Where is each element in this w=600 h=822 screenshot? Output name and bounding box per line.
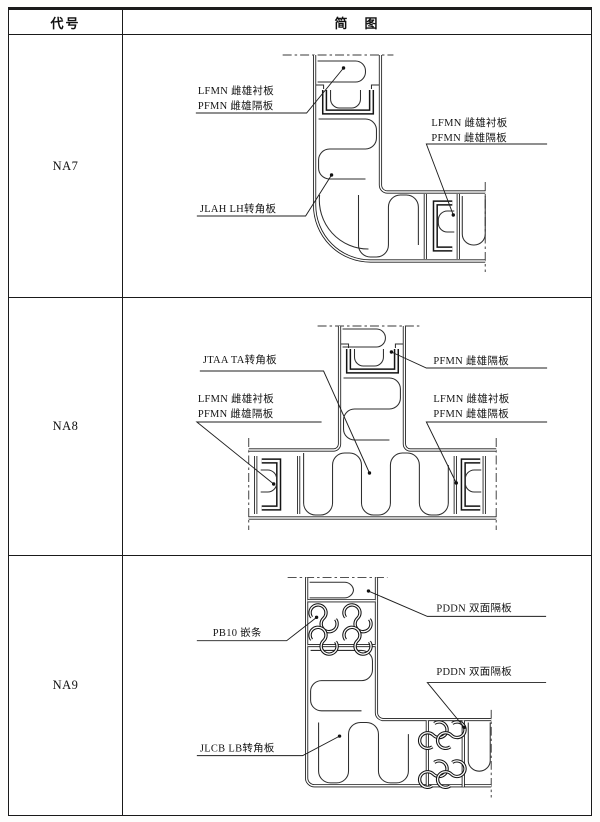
header-cell-diagram: 简 图 — [123, 10, 591, 34]
na9-corner-profile-diagram: PB10 嵌条 PDDN 双面隔板 PDDN 双面隔板 JLCB LB转角板 — [123, 556, 591, 815]
profile-label: LFMN 雌雄衬板 — [433, 392, 509, 405]
profile-label: PFMN 雌雄隔板 — [198, 407, 274, 420]
na8-tee-profile-diagram: JTAA TA转角板 LFMN 雌雄衬板 PFMN 雌雄隔板 PFMN 雌雄隔板… — [123, 298, 591, 555]
profile-table: 代号 简 图 NA7 — [8, 7, 592, 816]
header-cell-code: 代号 — [9, 10, 123, 34]
profile-label: PDDN 双面隔板 — [436, 665, 512, 678]
profile-code: NA8 — [53, 419, 79, 434]
table-row-na7: NA7 — [9, 35, 591, 298]
table-row-na8: NA8 — [9, 298, 591, 556]
profile-label: JLAH LH转角板 — [200, 202, 277, 215]
profile-code: NA9 — [53, 678, 79, 693]
diagram-cell-na8: JTAA TA转角板 LFMN 雌雄衬板 PFMN 雌雄隔板 PFMN 雌雄隔板… — [123, 298, 591, 555]
code-cell-na9: NA9 — [9, 556, 123, 815]
profile-label: JTAA TA转角板 — [203, 353, 277, 366]
joint-channel-right — [455, 456, 484, 514]
profile-label: PB10 嵌条 — [213, 626, 262, 639]
header-diagram-label: 简 图 — [334, 13, 379, 32]
profile-label: LFMN 雌雄衬板 — [198, 392, 274, 405]
thermal-break-serpentine — [318, 61, 486, 257]
diagram-cell-na9: PB10 嵌条 PDDN 双面隔板 PDDN 双面隔板 JLCB LB转角板 — [123, 556, 591, 815]
profile-label: PFMN 雌雄隔板 — [433, 354, 509, 367]
document-page: 代号 简 图 NA7 — [0, 0, 600, 822]
profile-label: JLCB LB转角板 — [200, 742, 275, 755]
profile-label: PFMN 雌雄隔板 — [198, 99, 274, 112]
diagram-cell-na7: LFMN 雌雄衬板 PFMN 雌雄隔板 LFMN 雌雄衬板 PFMN 雌雄隔板 … — [123, 35, 591, 297]
table-row-na9: NA9 — [9, 556, 591, 815]
profile-label: PDDN 双面隔板 — [436, 602, 512, 615]
profile-label: LFMN 雌雄衬板 — [431, 116, 507, 129]
code-cell-na8: NA8 — [9, 298, 123, 555]
insert-strip-joint-top — [308, 601, 376, 654]
table-header-row: 代号 简 图 — [9, 10, 591, 35]
profile-label: PFMN 雌雄隔板 — [433, 407, 509, 420]
joint-channel-top — [316, 85, 380, 112]
code-cell-na7: NA7 — [9, 35, 123, 297]
joint-channel-left — [256, 456, 299, 514]
profile-label: LFMN 雌雄衬板 — [198, 84, 274, 97]
header-code-label: 代号 — [50, 13, 80, 32]
callout-leaders: PB10 嵌条 PDDN 双面隔板 PDDN 双面隔板 JLCB LB转角板 — [197, 589, 546, 755]
joint-channel-right — [425, 194, 458, 259]
na7-corner-profile-diagram: LFMN 雌雄衬板 PFMN 雌雄隔板 LFMN 雌雄衬板 PFMN 雌雄隔板 … — [123, 35, 591, 297]
joint-channel-top — [341, 344, 404, 371]
profile-code: NA7 — [53, 159, 79, 174]
double-partition-joint-right — [420, 721, 465, 788]
profile-label: PFMN 雌雄隔板 — [431, 131, 507, 144]
